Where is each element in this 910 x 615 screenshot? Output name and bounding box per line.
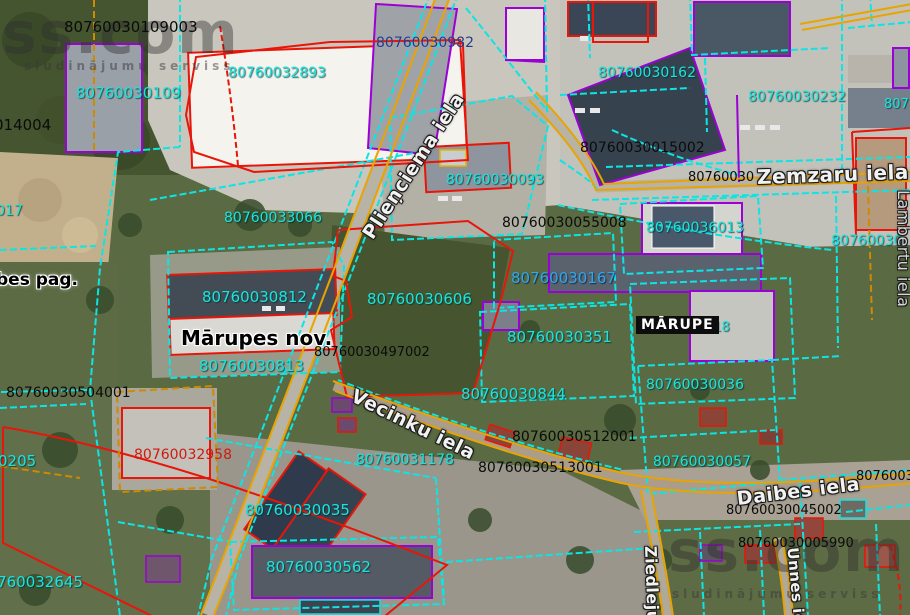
parcel-number-label: 80760030232 — [748, 90, 846, 104]
parcel-number-label: 80760030 — [688, 171, 754, 184]
parcel-number-label: 80760030606 — [367, 292, 472, 307]
parcel-number-label: 80760030504001 — [6, 386, 131, 400]
parcel-number-label: 80760030982 — [376, 36, 474, 50]
parcel-number-label: 80760030109003 — [64, 20, 198, 35]
parcel-number-label: 80760033066 — [224, 211, 322, 225]
parcel-number-label: 80760030 — [831, 234, 902, 248]
place-name-label: Mārupes nov. — [181, 328, 332, 348]
parcel-number-label: 80760030015002 — [580, 141, 705, 155]
parcel-number-label: 80760032893 — [228, 66, 326, 80]
parcel-number-label: 80760030035 — [245, 503, 350, 518]
parcel-number-label: 80760030109 — [76, 86, 181, 101]
parcel-number-label: 80760030512001 — [512, 430, 637, 444]
parcel-number-label: 80760030055008 — [502, 216, 627, 230]
parcel-number-label: 80760030162 — [598, 66, 696, 80]
parcel-number-label: 80760030562 — [266, 560, 371, 575]
parcel-number-label: 80760030057 — [653, 455, 751, 469]
parcel-number-label: 0205 — [0, 454, 36, 469]
parcel-number-label: 80760030351 — [507, 330, 612, 345]
parcel-number-label: 80760032645 — [0, 575, 83, 590]
street-name-label: Lambertu iela — [895, 190, 910, 307]
map-viewport[interactable]: ss.com sludinājumu serviss ss.com sludin… — [0, 0, 910, 615]
parcel-number-label: 80760030813 — [199, 359, 304, 374]
map-labels-layer: 8076003010900380760030109014004807600328… — [0, 0, 910, 615]
parcel-number-label: 014004 — [0, 118, 51, 133]
parcel-number-label: 8076003 — [884, 98, 910, 111]
parcel-number-label: 017 — [0, 204, 23, 218]
parcel-number-label: 80760030036 — [646, 378, 744, 392]
place-name-label: MĀRUPE — [636, 316, 719, 334]
parcel-number-label: 80760032958 — [134, 448, 232, 462]
parcel-number-label: 80760031178 — [356, 453, 454, 467]
parcel-number-label: 80760030844 — [461, 387, 566, 402]
parcel-number-label: 8076003 — [856, 470, 910, 483]
parcel-number-label: 80760030093 — [446, 173, 544, 187]
street-name-label: Plieņciema iela — [360, 90, 468, 243]
parcel-number-label: 80760036013 — [646, 221, 744, 235]
street-name-label: Unnes iela — [785, 547, 808, 615]
parcel-number-label: 80760030513001 — [478, 461, 603, 475]
street-name-label: Ziedleju iela — [642, 546, 662, 615]
street-name-label: Zemzaru iela — [757, 162, 909, 187]
parcel-number-label: 80760030167 — [511, 271, 616, 286]
place-name-label: bes pag. — [0, 272, 78, 289]
parcel-number-label: 80760030812 — [202, 290, 307, 305]
